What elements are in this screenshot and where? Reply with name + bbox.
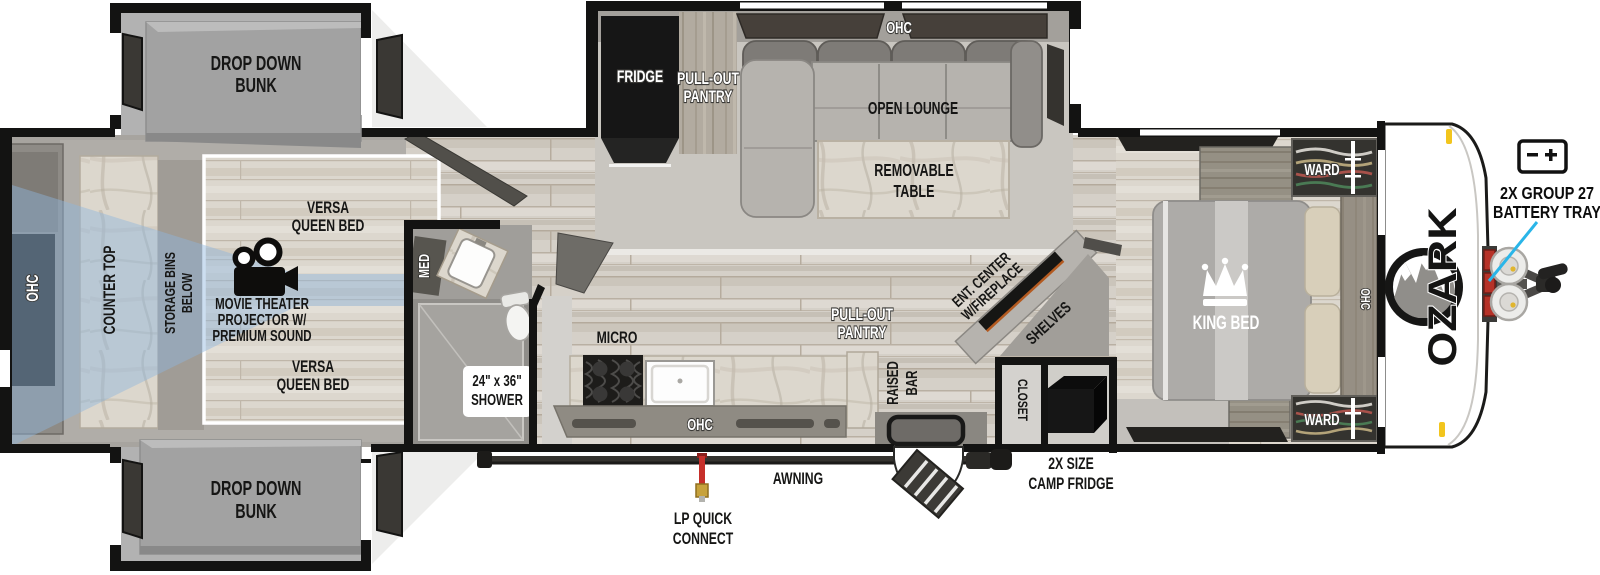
svg-text:MED: MED bbox=[415, 254, 432, 278]
svg-text:BELOW: BELOW bbox=[178, 272, 195, 313]
svg-text:PREMIUM SOUND: PREMIUM SOUND bbox=[212, 326, 311, 344]
svg-text:VERSA: VERSA bbox=[292, 358, 334, 376]
svg-text:CLOSET: CLOSET bbox=[1015, 379, 1031, 421]
svg-text:TABLE: TABLE bbox=[893, 182, 934, 202]
svg-text:SHOWER: SHOWER bbox=[471, 390, 523, 408]
svg-text:OPEN LOUNGE: OPEN LOUNGE bbox=[868, 99, 958, 119]
svg-text:STORAGE BINS: STORAGE BINS bbox=[161, 252, 178, 334]
svg-text:BATTERY TRAY: BATTERY TRAY bbox=[1493, 203, 1600, 223]
svg-text:PULL-OUT: PULL-OUT bbox=[831, 306, 893, 324]
svg-text:VERSA: VERSA bbox=[307, 199, 349, 217]
svg-text:PANTRY: PANTRY bbox=[838, 324, 887, 342]
svg-text:BUNK: BUNK bbox=[235, 500, 277, 523]
svg-text:PANTRY: PANTRY bbox=[684, 88, 733, 106]
svg-text:QUEEN BED: QUEEN BED bbox=[292, 217, 365, 235]
svg-text:2X SIZE: 2X SIZE bbox=[1048, 455, 1094, 473]
svg-text:REMOVABLE: REMOVABLE bbox=[874, 161, 953, 181]
svg-text:24" x 36": 24" x 36" bbox=[472, 371, 521, 389]
svg-text:DROP DOWN: DROP DOWN bbox=[211, 52, 302, 75]
svg-text:AWNING: AWNING bbox=[773, 470, 823, 488]
svg-text:OHC: OHC bbox=[24, 274, 42, 301]
svg-text:PULL-OUT: PULL-OUT bbox=[677, 70, 739, 88]
svg-text:COUNTER TOP: COUNTER TOP bbox=[101, 246, 119, 335]
svg-text:2X GROUP 27: 2X GROUP 27 bbox=[1500, 184, 1594, 204]
svg-text:BAR: BAR bbox=[902, 371, 920, 396]
svg-text:KING BED: KING BED bbox=[1193, 312, 1260, 334]
svg-text:OHC: OHC bbox=[1358, 288, 1372, 309]
svg-text:WARD: WARD bbox=[1304, 410, 1339, 428]
svg-text:QUEEN BED: QUEEN BED bbox=[277, 376, 350, 394]
svg-text:CAMP FRIDGE: CAMP FRIDGE bbox=[1028, 475, 1113, 493]
svg-text:BUNK: BUNK bbox=[235, 74, 277, 97]
svg-text:WARD: WARD bbox=[1304, 160, 1339, 178]
svg-text:OHC: OHC bbox=[687, 415, 713, 433]
svg-text:LP QUICK: LP QUICK bbox=[674, 510, 732, 528]
svg-text:MICRO: MICRO bbox=[597, 329, 638, 347]
svg-text:FRIDGE: FRIDGE bbox=[617, 68, 663, 86]
svg-text:OHC: OHC bbox=[886, 18, 912, 36]
svg-text:DROP DOWN: DROP DOWN bbox=[211, 477, 302, 500]
svg-text:CONNECT: CONNECT bbox=[673, 530, 733, 548]
svg-text:RAISED: RAISED bbox=[883, 361, 901, 405]
svg-text:OZARK: OZARK bbox=[1420, 207, 1464, 367]
